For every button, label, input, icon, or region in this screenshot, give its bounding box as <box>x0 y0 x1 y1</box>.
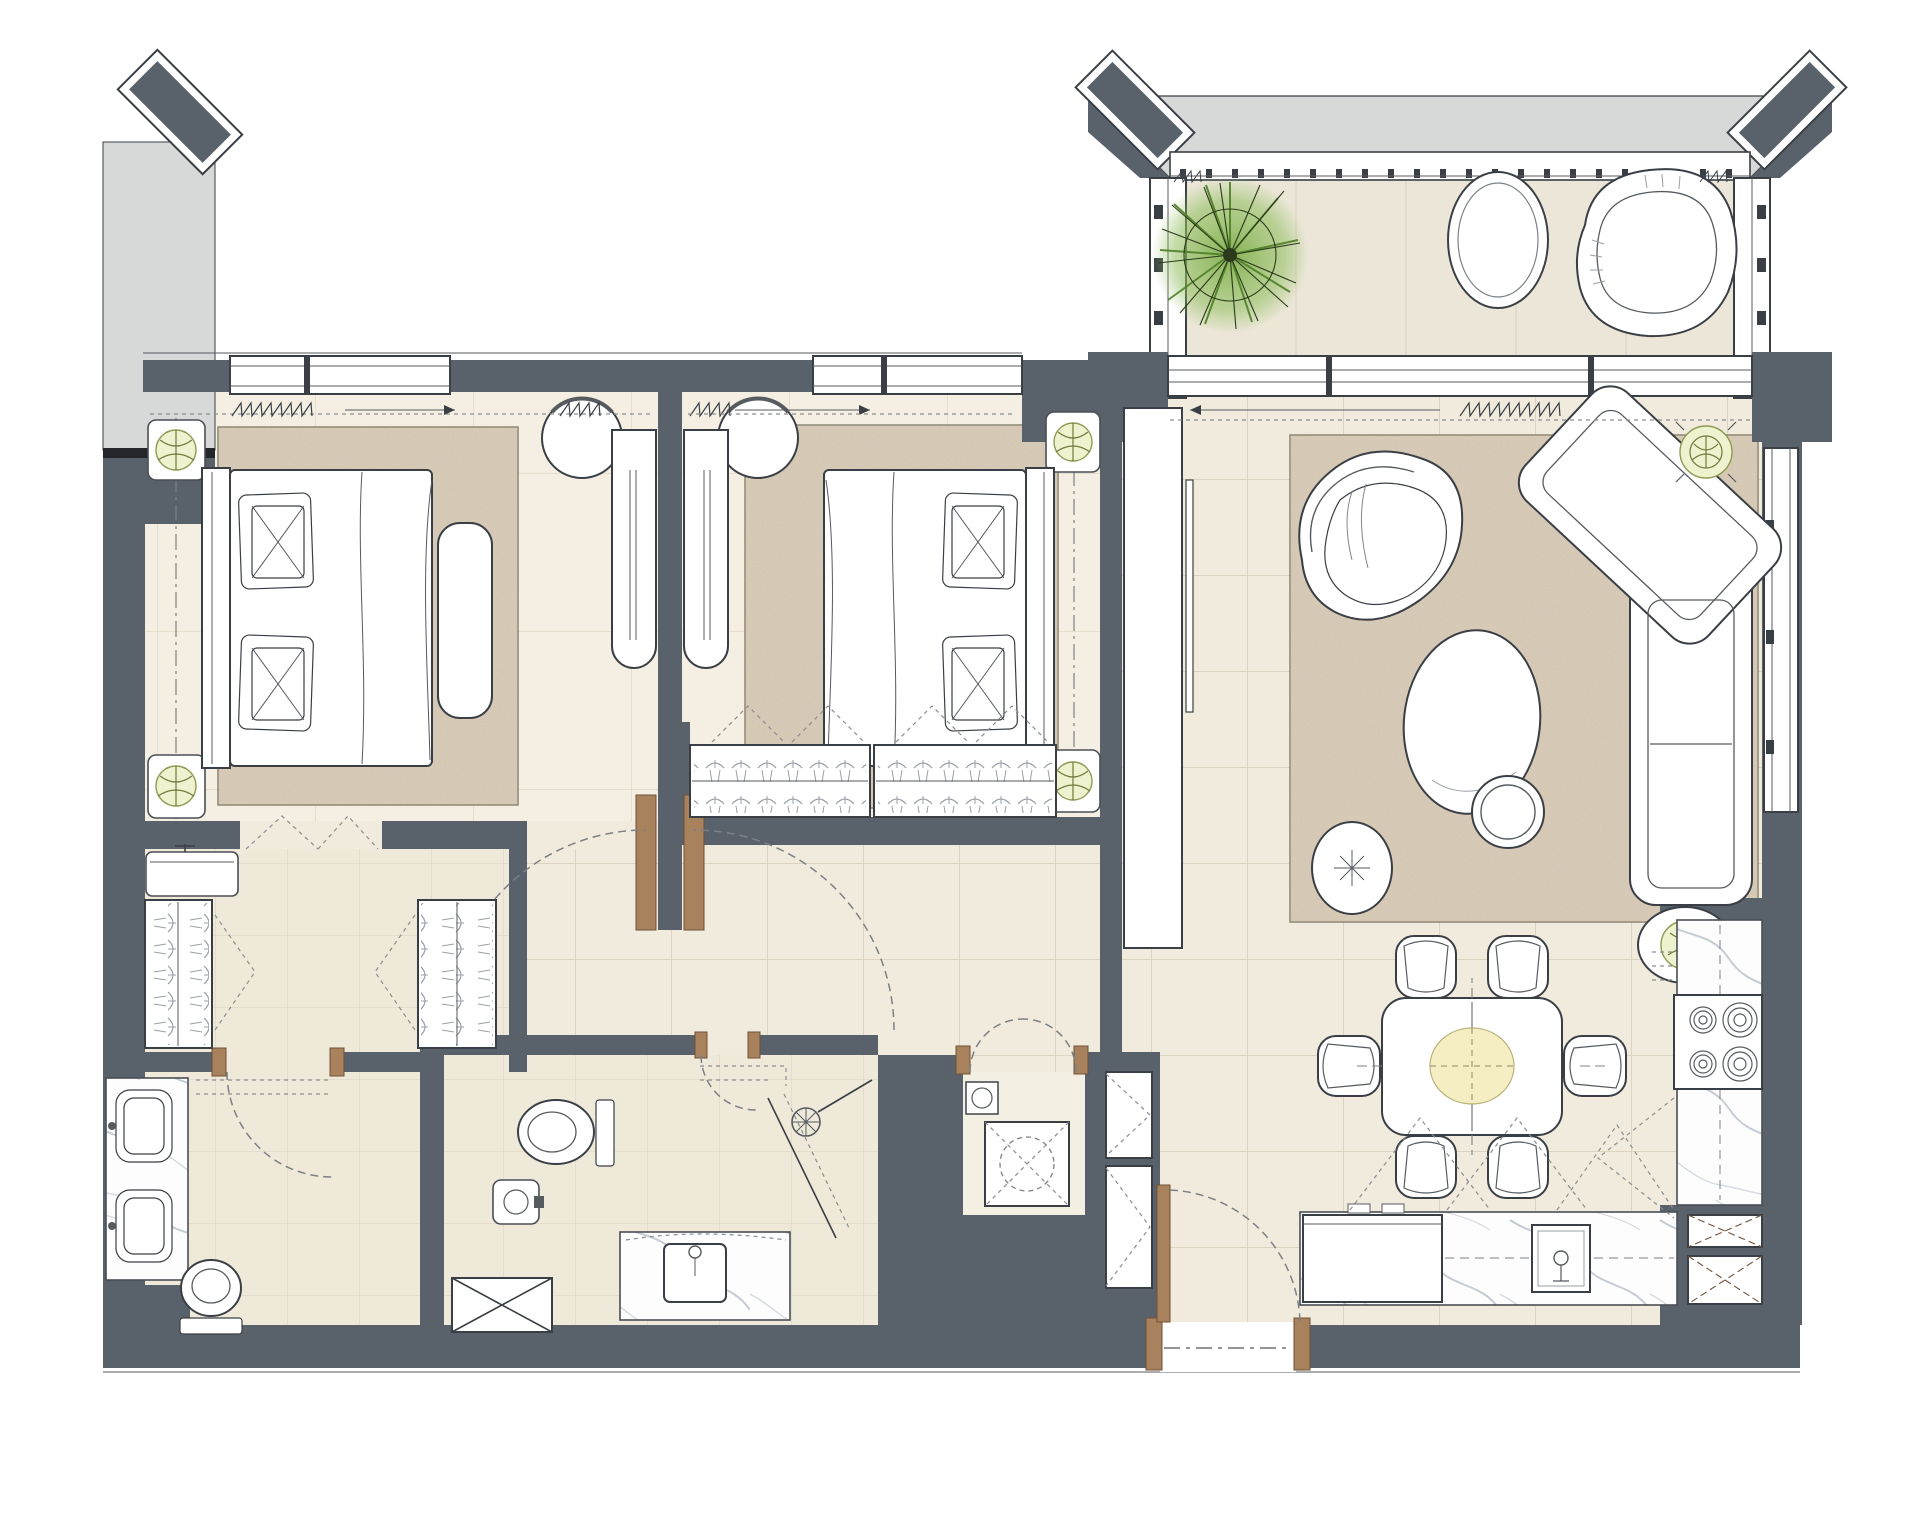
dressing-cabinet-2 <box>684 430 728 668</box>
bed1-nightstand-top <box>148 420 205 480</box>
wall-bed1-bottom-b <box>382 821 527 849</box>
kitchen-cabinet <box>1303 1215 1442 1302</box>
dining-chair <box>1488 936 1548 998</box>
wall-laundry-bottom <box>963 1215 1085 1325</box>
wall-bed2-bottom <box>682 817 1100 845</box>
dressing-cabinet-1 <box>612 430 656 668</box>
party-wall <box>103 142 215 450</box>
balcony-lounge-chair <box>1577 169 1737 336</box>
wall-spine <box>658 392 682 930</box>
dining-chair <box>1488 1136 1548 1198</box>
kitchen-storage-boxes <box>1688 1215 1762 1304</box>
balcony <box>1076 51 1847 442</box>
window-living-side <box>1764 448 1798 812</box>
closet-wardrobe-right <box>418 900 496 1048</box>
pouf <box>1312 822 1392 914</box>
tv-wall <box>1124 408 1193 948</box>
hall-cabinet-upper <box>1106 1072 1152 1158</box>
bed2-nightstand-top <box>1046 412 1100 472</box>
master-toilet <box>180 1260 242 1334</box>
kitchen-sink <box>1532 1225 1590 1292</box>
tv <box>1186 480 1193 712</box>
side-table <box>1472 776 1544 848</box>
bed1-nightstand-bottom <box>148 755 205 818</box>
closet-utility-counter <box>146 844 238 896</box>
hall-cabinet-lower <box>1106 1166 1152 1288</box>
wall-bath-divider <box>420 1035 444 1336</box>
wall-laundry-left <box>878 1055 963 1325</box>
bath2-linen-cabinet <box>452 1278 552 1332</box>
floor-plan-page <box>0 0 1918 1522</box>
wall-bottom <box>103 1325 1800 1368</box>
balcony-stub-right <box>1752 352 1832 442</box>
dining-chair <box>1318 1036 1380 1096</box>
bed1 <box>202 468 432 768</box>
floor-plan-drawing <box>0 0 1918 1522</box>
bed2-headboard <box>1026 468 1054 768</box>
bed1-bench <box>438 523 492 718</box>
bath2-small-basin <box>493 1180 544 1224</box>
wall-closet-bottom-a <box>103 1052 225 1072</box>
tv-unit <box>1124 408 1182 948</box>
balcony-plant <box>1152 177 1308 333</box>
wall-bed2-living <box>1100 392 1122 1052</box>
dining-chair <box>1396 1136 1456 1198</box>
cooktop <box>1674 995 1762 1089</box>
kitchen-base-counter <box>1300 1204 1677 1305</box>
bath2-vanity <box>620 1232 790 1320</box>
dining-chair <box>1396 936 1456 998</box>
window-bedroom-2 <box>813 356 1022 394</box>
balcony-table <box>1448 172 1548 308</box>
bath2-toilet <box>518 1100 614 1166</box>
bed1-headboard <box>202 468 230 768</box>
window-balcony-sliding <box>1168 356 1752 396</box>
wall-bath2-top-b <box>755 1035 878 1055</box>
wall-bed1-bottom-a <box>143 821 240 849</box>
laundry-appliance <box>966 1082 998 1114</box>
window-bedroom-1 <box>230 356 450 394</box>
bed2 <box>824 468 1054 768</box>
washing-machine <box>985 1122 1069 1206</box>
closet-wardrobe-left <box>145 900 212 1048</box>
master-vanity <box>106 1078 188 1280</box>
